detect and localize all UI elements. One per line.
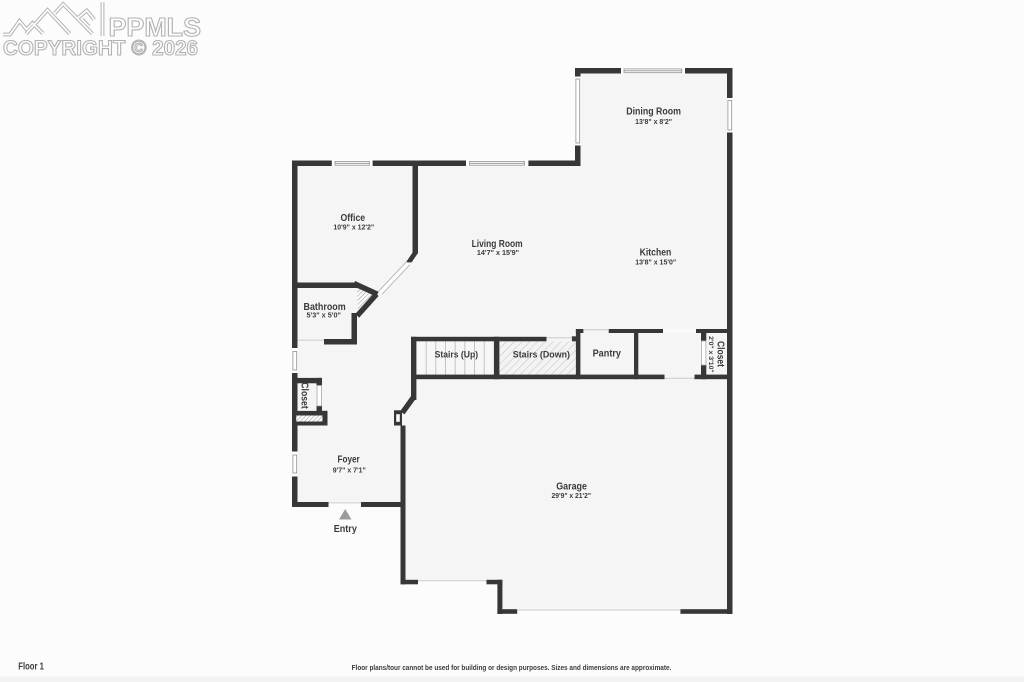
svg-text:Dining Room: Dining Room: [626, 106, 681, 117]
svg-text:2'0" x 3'10": 2'0" x 3'10": [707, 336, 714, 373]
svg-text:14'7" x 15'9": 14'7" x 15'9": [477, 248, 520, 257]
svg-text:Stairs (Up): Stairs (Up): [435, 350, 479, 360]
svg-text:9'7" x 7'1": 9'7" x 7'1": [333, 465, 366, 474]
svg-text:Pantry: Pantry: [593, 349, 622, 360]
svg-text:Closet: Closet: [299, 382, 310, 409]
svg-text:Stairs (Down): Stairs (Down): [513, 350, 570, 360]
svg-text:10'9" x 12'2": 10'9" x 12'2": [333, 223, 374, 232]
svg-text:Floor 1: Floor 1: [18, 662, 44, 673]
svg-text:29'9" x 21'2": 29'9" x 21'2": [552, 491, 592, 500]
svg-text:5'3" x 5'0": 5'3" x 5'0": [306, 310, 341, 319]
svg-text:COPYRIGHT © 2026: COPYRIGHT © 2026: [3, 37, 198, 60]
svg-text:Floor plans/tour cannot be use: Floor plans/tour cannot be used for buil…: [352, 665, 672, 672]
svg-text:13'8" x 8'2": 13'8" x 8'2": [635, 117, 672, 126]
svg-text:Entry: Entry: [334, 524, 357, 535]
svg-text:Foyer: Foyer: [338, 455, 360, 466]
svg-text:13'8" x 15'0": 13'8" x 15'0": [635, 258, 676, 267]
svg-text:Closet: Closet: [715, 341, 726, 368]
